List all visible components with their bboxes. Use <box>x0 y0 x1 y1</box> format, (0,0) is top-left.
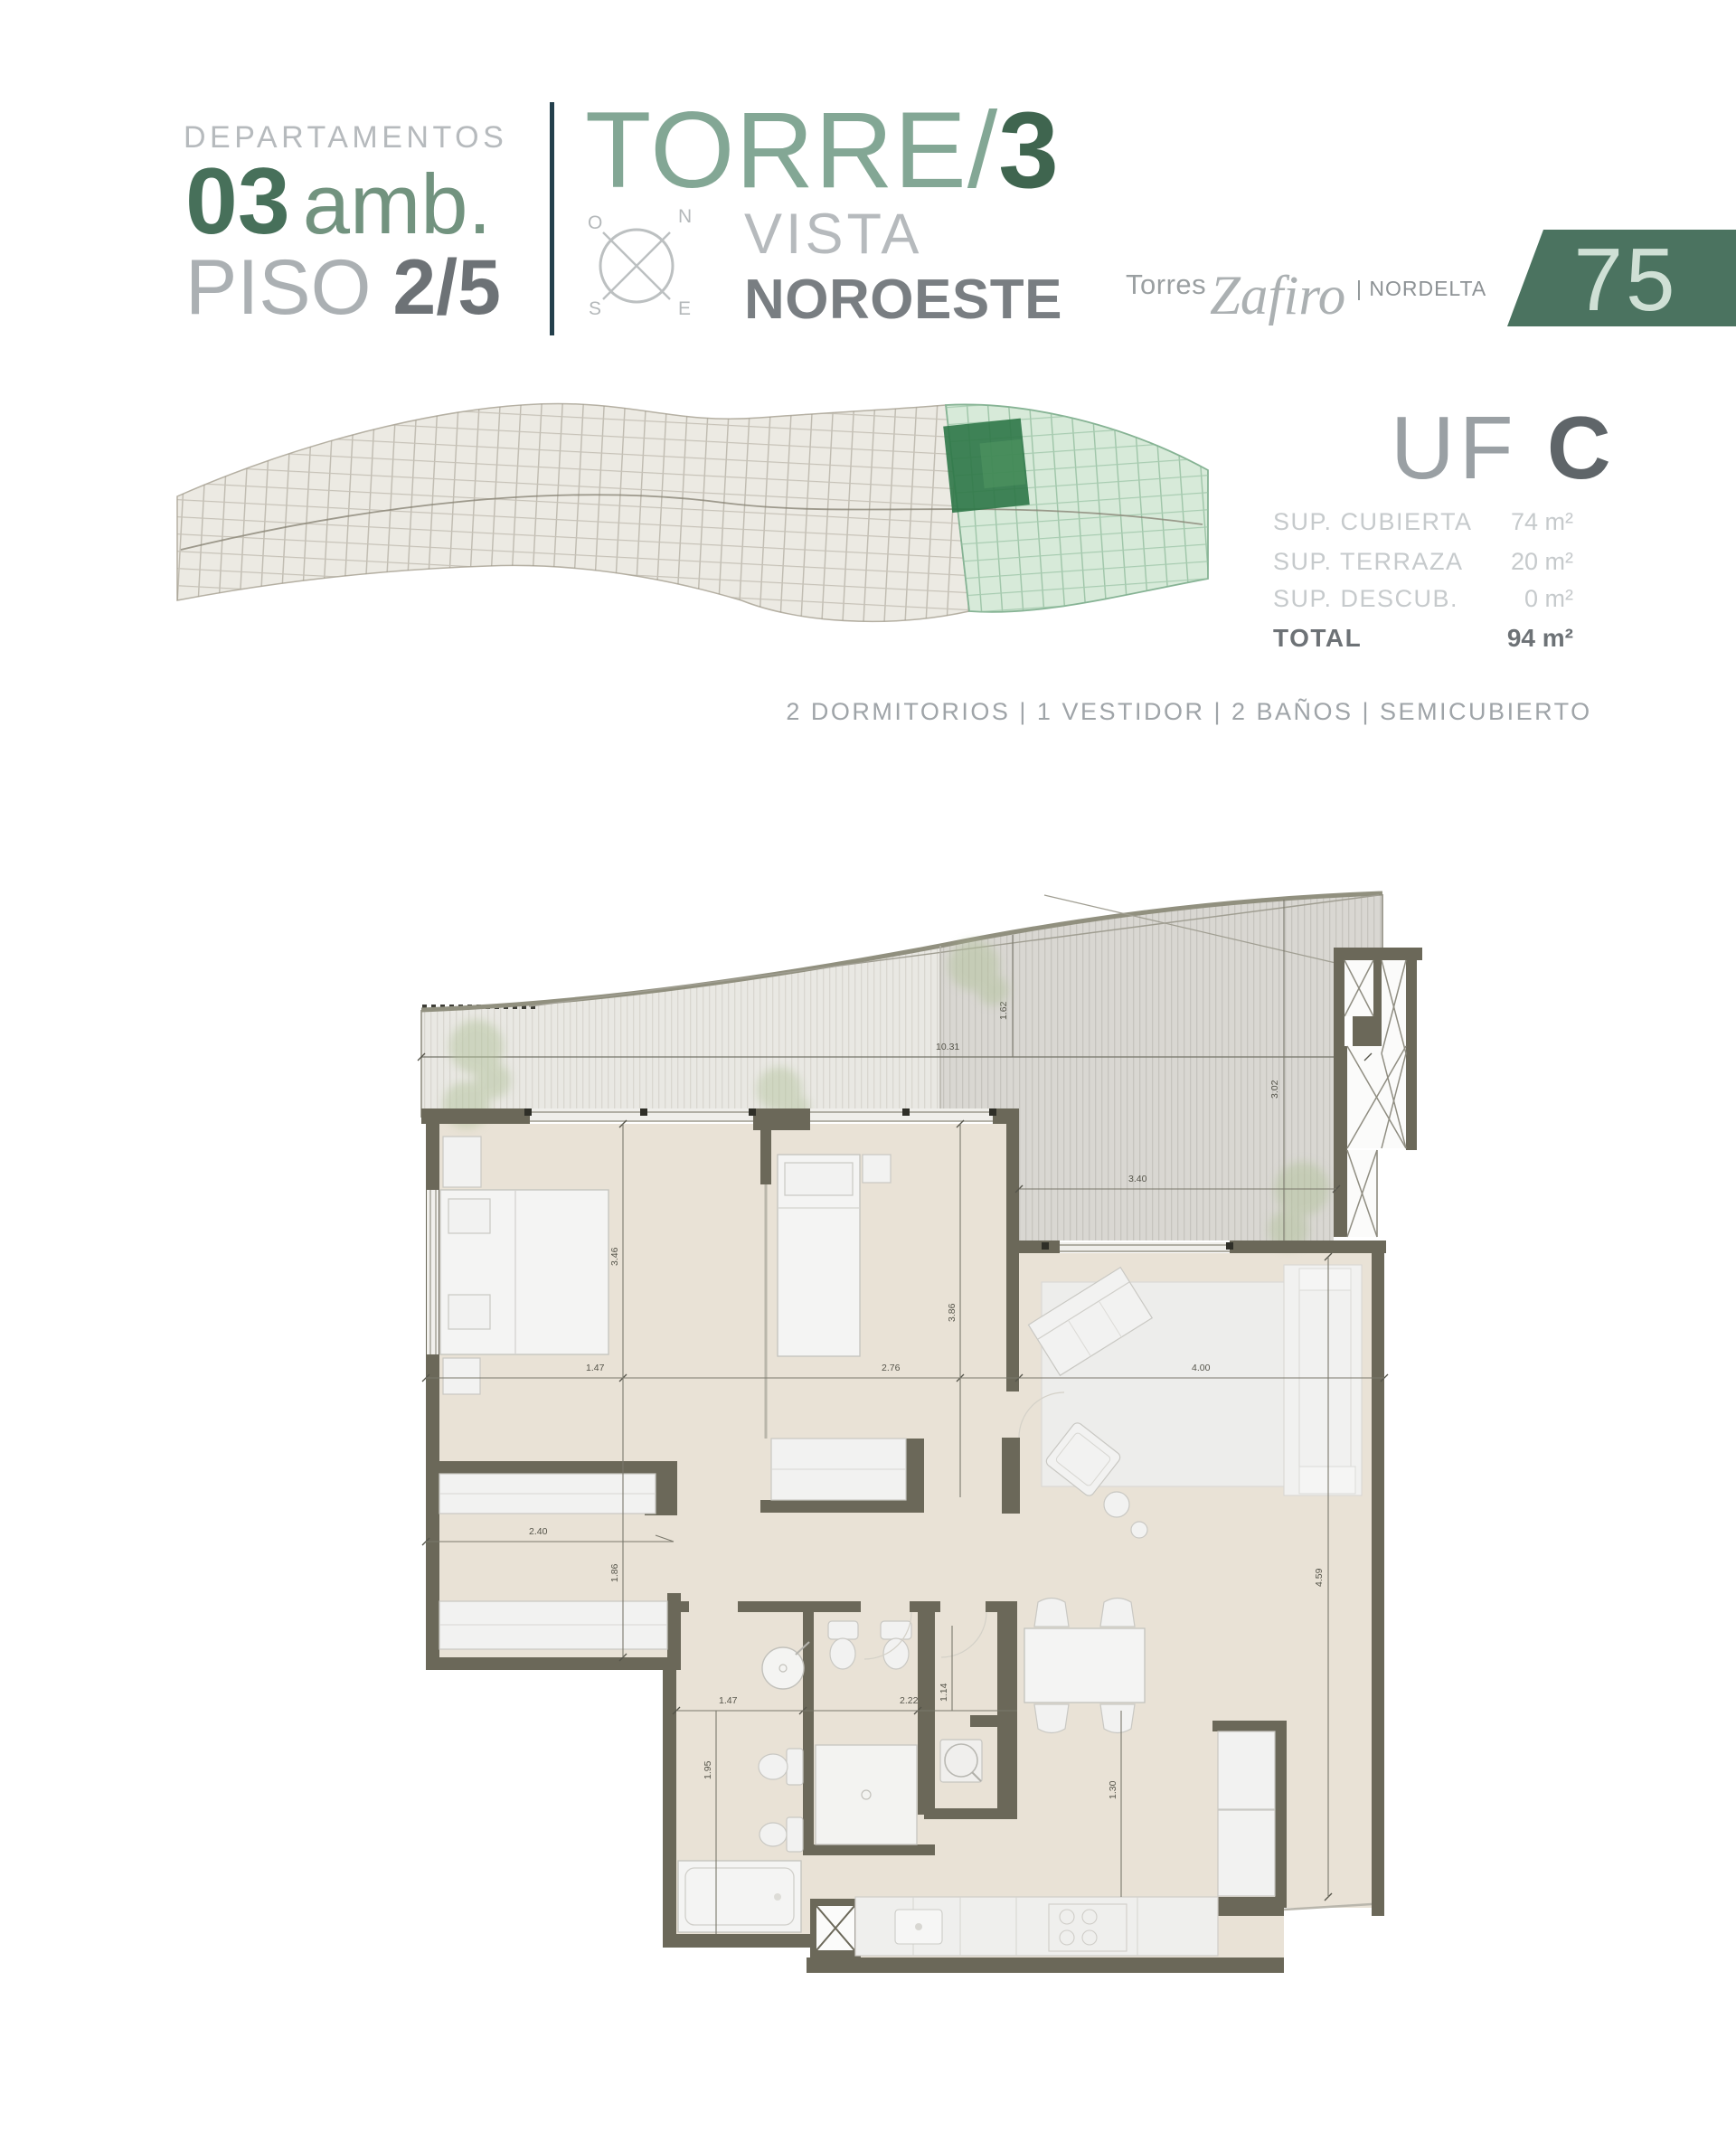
svg-text:03amb.: 03amb. <box>185 149 492 254</box>
svg-text:2.22: 2.22 <box>900 1695 919 1706</box>
svg-text:3.02: 3.02 <box>1269 1080 1280 1099</box>
svg-text:VISTA: VISTA <box>744 203 922 266</box>
svg-text:S: S <box>589 298 601 319</box>
svg-text:1.30: 1.30 <box>1108 1780 1118 1799</box>
svg-text:3.40: 3.40 <box>1128 1174 1147 1184</box>
svg-text:N: N <box>678 206 692 227</box>
svg-text:| NORDELTA: | NORDELTA <box>1356 277 1486 300</box>
svg-text:1.95: 1.95 <box>703 1760 713 1779</box>
svg-text:1.86: 1.86 <box>609 1563 620 1582</box>
svg-text:1.62: 1.62 <box>998 1001 1009 1020</box>
svg-text:2.76: 2.76 <box>882 1363 901 1373</box>
svg-text:74 m²: 74 m² <box>1511 508 1573 535</box>
svg-text:1.47: 1.47 <box>586 1363 605 1373</box>
svg-text:NOROESTE: NOROESTE <box>744 269 1062 331</box>
svg-text:20 m²: 20 m² <box>1511 548 1573 575</box>
svg-text:UF C: UF C <box>1391 398 1616 497</box>
svg-text:E: E <box>678 298 691 319</box>
svg-text:2.40: 2.40 <box>529 1526 548 1537</box>
svg-text:Zafiro: Zafiro <box>1210 266 1345 326</box>
svg-text:SUP. DESCUB.: SUP. DESCUB. <box>1273 585 1458 612</box>
svg-text:O: O <box>588 212 602 233</box>
svg-text:TOTAL: TOTAL <box>1273 624 1362 652</box>
svg-text:4.00: 4.00 <box>1192 1363 1211 1373</box>
svg-text:PISO 2/5: PISO 2/5 <box>185 244 501 331</box>
svg-text:10.31: 10.31 <box>936 1042 959 1052</box>
svg-text:0 m²: 0 m² <box>1524 585 1573 612</box>
svg-text:2 DORMITORIOS | 1 VESTIDOR | 2: 2 DORMITORIOS | 1 VESTIDOR | 2 BAÑOS | S… <box>786 697 1591 725</box>
svg-text:1.14: 1.14 <box>939 1683 949 1702</box>
svg-text:Torres: Torres <box>1126 269 1206 300</box>
svg-text:4.59: 4.59 <box>1314 1568 1325 1587</box>
svg-text:3.86: 3.86 <box>947 1303 958 1322</box>
svg-text:TORRE/3: TORRE/3 <box>585 90 1060 211</box>
svg-text:SUP. CUBIERTA: SUP. CUBIERTA <box>1273 508 1473 535</box>
svg-text:SUP. TERRAZA: SUP. TERRAZA <box>1273 548 1464 575</box>
svg-text:3.46: 3.46 <box>609 1247 620 1266</box>
svg-text:75: 75 <box>1573 230 1677 329</box>
svg-text:1.47: 1.47 <box>719 1695 738 1706</box>
svg-text:94 m²: 94 m² <box>1507 624 1573 652</box>
